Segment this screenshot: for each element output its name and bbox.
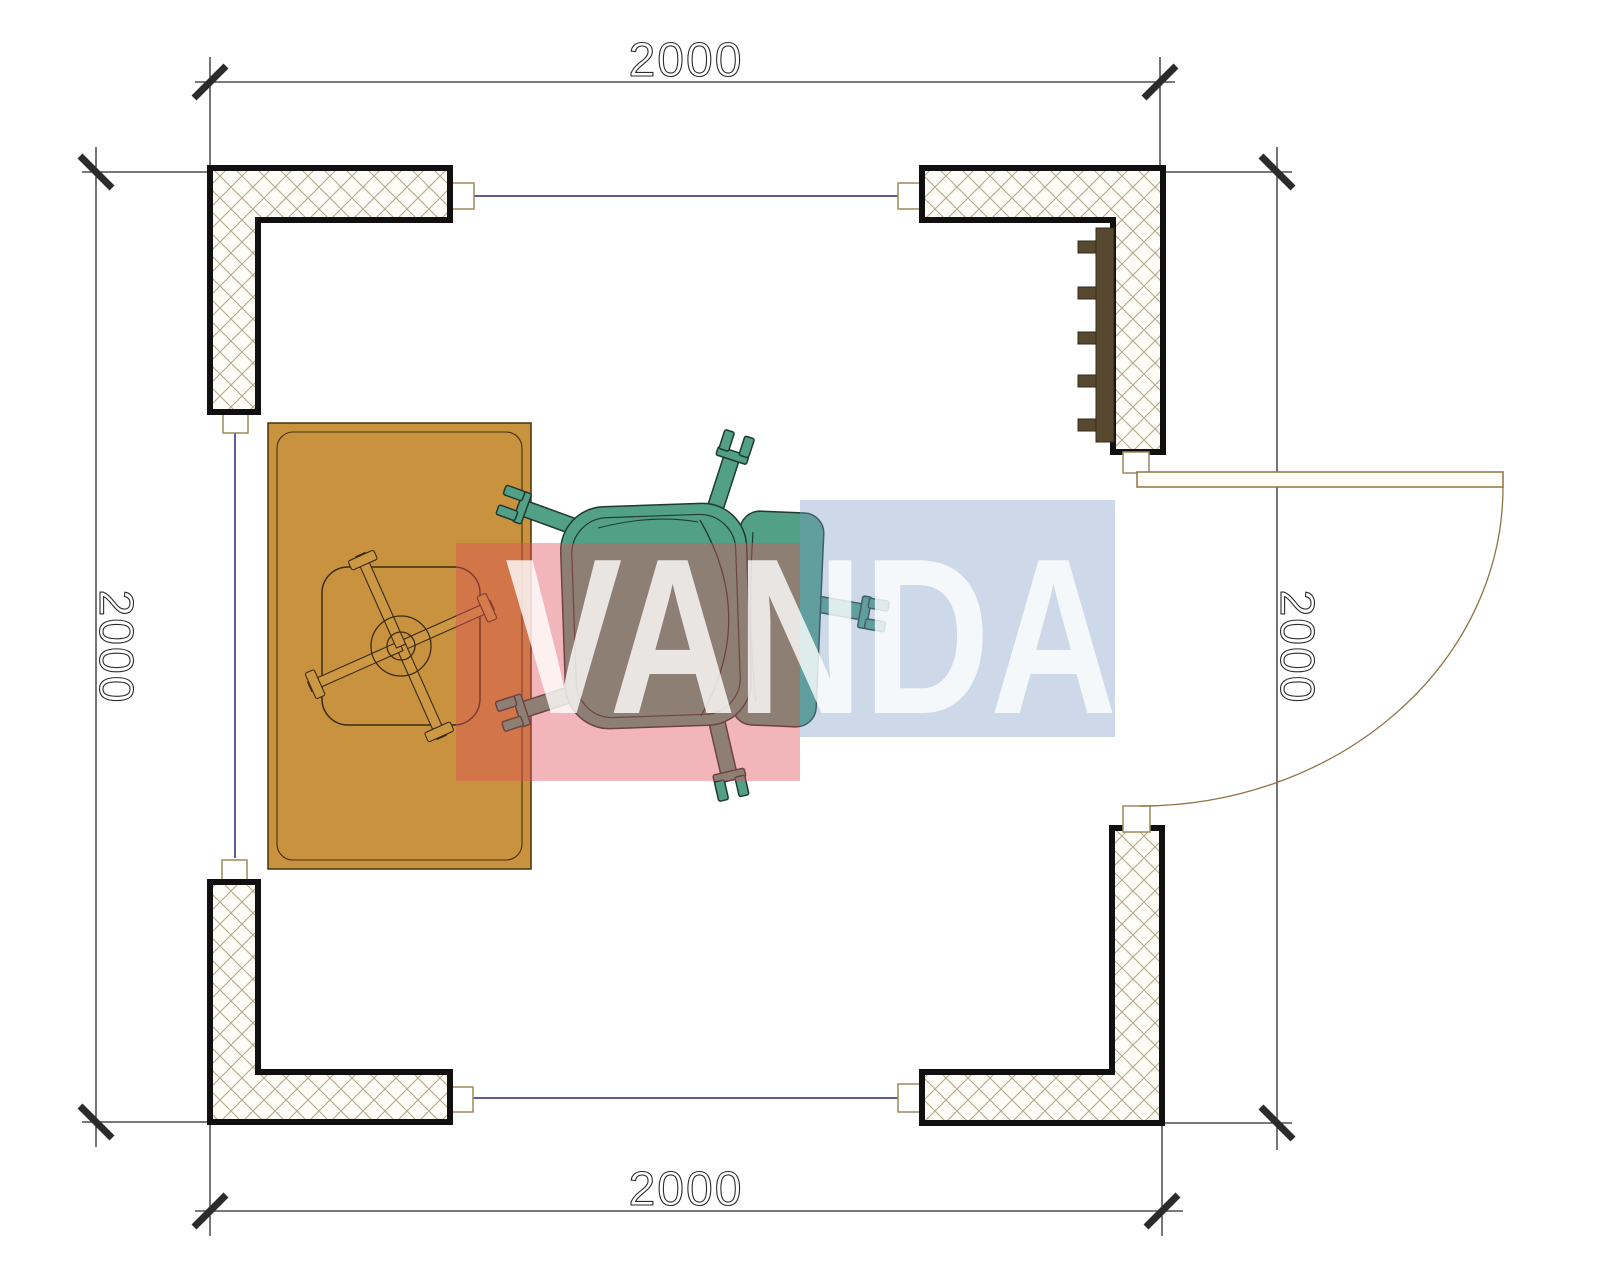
wall-end-connector bbox=[450, 183, 474, 209]
window-left bbox=[222, 412, 248, 882]
watermark: VANDA bbox=[456, 500, 1117, 781]
wall-end-connector bbox=[898, 1084, 922, 1112]
radiator-fin bbox=[1078, 332, 1096, 344]
radiator-fin bbox=[1078, 419, 1096, 431]
door-jamb-connector bbox=[1123, 452, 1149, 473]
dimension-label-right: 2000 bbox=[1270, 590, 1323, 705]
wall-end-connector bbox=[898, 183, 922, 209]
door-jamb-connector bbox=[1123, 806, 1150, 832]
dimension-label-bottom: 2000 bbox=[629, 1163, 744, 1216]
radiator-fin bbox=[1078, 375, 1096, 387]
wall-top-left bbox=[210, 168, 450, 412]
window-top bbox=[450, 183, 922, 209]
wall-bottom-right bbox=[922, 828, 1162, 1123]
window-bottom bbox=[450, 1084, 922, 1112]
wall-bottom-left bbox=[210, 882, 450, 1122]
floor-plan-canvas: 2000 2000 2000 2000 bbox=[0, 0, 1600, 1280]
radiator-body bbox=[1096, 228, 1114, 442]
dimension-label-top: 2000 bbox=[629, 34, 744, 87]
wall-top-right bbox=[922, 168, 1163, 452]
door-leaf bbox=[1137, 472, 1503, 487]
wall-end-connector bbox=[450, 1087, 473, 1112]
radiator bbox=[1078, 228, 1114, 442]
radiator-fin bbox=[1078, 241, 1096, 253]
dimension-label-left: 2000 bbox=[89, 590, 142, 705]
radiator-fin bbox=[1078, 287, 1096, 299]
wall-end-connector bbox=[222, 860, 247, 882]
watermark-text: VANDA bbox=[505, 513, 1117, 761]
wall-end-connector bbox=[223, 412, 248, 433]
floor-plan-drawing: 2000 2000 2000 2000 bbox=[0, 0, 1600, 1280]
